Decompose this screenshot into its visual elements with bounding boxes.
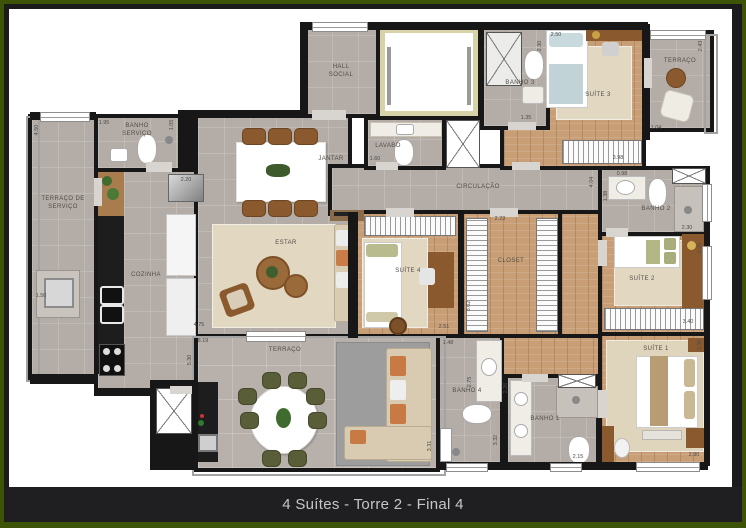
table-centerpiece: [266, 164, 290, 177]
dimension-label: 2.20: [181, 177, 192, 183]
coffee-table: [284, 274, 308, 298]
room-label-closet: CLOSET: [498, 258, 524, 266]
dimension-label: 1.60: [370, 156, 381, 162]
kitchen-cabinet: [166, 278, 196, 336]
room-label-jantar: JANTAR: [318, 156, 343, 164]
dimension-label: 2.25: [697, 243, 703, 254]
dimension-label: 2.23: [495, 216, 506, 222]
shaft-icon: [156, 388, 192, 434]
shower-box-icon: [558, 374, 596, 388]
window: [446, 463, 488, 472]
pillow: [664, 238, 676, 250]
dimension-label: 4.50: [34, 125, 40, 136]
fridge: [166, 214, 196, 276]
sink-icon: [514, 392, 528, 406]
window: [40, 112, 90, 122]
dining-chair: [242, 128, 266, 145]
blanket: [549, 64, 583, 104]
terrace-chair: [288, 450, 307, 467]
elevator: [380, 28, 478, 116]
dining-chair: [294, 128, 318, 145]
room-label-hall-social: HALL SOCIAL: [329, 64, 353, 80]
room-label-banho2: BANHO 2: [641, 206, 670, 214]
terrace-chair: [262, 372, 281, 389]
room-label-suite1: SUÍTE 1: [643, 346, 668, 354]
dimension-label: 2.30: [682, 225, 693, 231]
shower-head-icon: [572, 396, 580, 404]
kitchen-sink: [100, 286, 124, 305]
dimension-label: 5.30: [187, 355, 193, 366]
lamp-icon: [687, 241, 696, 250]
dimension-label: 1.95: [99, 120, 110, 126]
dimension-label: 4.75: [194, 322, 205, 328]
dimension-label: 3.32: [493, 435, 499, 446]
sofa-cushion: [390, 404, 406, 424]
sofa-cushion: [390, 356, 406, 376]
shaft-icon: [446, 120, 480, 168]
shower-head-icon: [452, 448, 460, 456]
desk-chair: [419, 268, 435, 285]
window: [636, 462, 700, 472]
plant-icon: [198, 420, 204, 426]
elevator-door-rail: [467, 47, 471, 105]
terrace-chair: [240, 412, 259, 429]
dining-chair: [268, 128, 292, 145]
dimension-label: 0.98: [617, 171, 628, 177]
closet-wardrobe: [466, 218, 488, 332]
dimension-label: 4.04: [589, 177, 595, 188]
dimension-label: 1.38: [603, 191, 609, 202]
room-label-banho-servico: BANHO SERVIÇO: [122, 123, 152, 139]
sink-icon: [514, 424, 528, 438]
room-label-terraco-servico: TERRAÇO DE SERVIÇO: [41, 196, 84, 212]
dimension-label: 8.19: [198, 338, 209, 344]
dimension-label: 3.98: [613, 155, 624, 161]
window: [702, 184, 712, 222]
window: [702, 246, 712, 300]
pouf: [389, 317, 407, 335]
shower-head-icon: [684, 206, 692, 214]
pillow: [684, 391, 695, 419]
desk-chair: [614, 438, 630, 458]
toilet-icon: [524, 50, 544, 80]
terrace-chair: [308, 412, 327, 429]
room-label-lavabo: LAVABO: [375, 143, 401, 151]
dimension-label: 2.75: [467, 377, 473, 388]
dimension-label: 2.43: [698, 41, 704, 52]
terrace-chair: [288, 372, 307, 389]
table-centerpiece: [276, 408, 291, 428]
plant-icon: [102, 176, 112, 186]
balcony-railing: [26, 116, 40, 382]
sofa-cushion: [390, 380, 406, 400]
sink-icon: [481, 358, 497, 376]
room-label-estar: ESTAR: [275, 240, 297, 248]
room-label-banho1: BANHO 1: [530, 416, 559, 424]
wardrobe-suite4: [364, 216, 456, 236]
dimension-label: 1.35: [521, 115, 532, 121]
room-label-terraco-inferior: TERRAÇO: [269, 347, 301, 355]
blanket: [646, 240, 660, 264]
pillow: [664, 252, 676, 264]
steel-sink-icon: [44, 278, 74, 308]
bed-bench: [642, 430, 682, 440]
nightstand: [686, 428, 706, 448]
dimension-label: 2.30: [537, 41, 543, 52]
closet-wardrobe: [536, 218, 558, 332]
hall-privativo-vertical: [562, 214, 600, 336]
shower-box-icon: [486, 32, 522, 86]
dimension-label: 2.90: [689, 452, 700, 458]
hall-privativo-inferior: [502, 338, 600, 376]
wardrobe-suite3: [562, 140, 642, 164]
pillow: [684, 359, 695, 387]
dimension-label: 3.02: [466, 301, 472, 312]
dimension-label: 2.50: [551, 32, 562, 38]
sink-icon: [616, 180, 635, 195]
dimension-label: 1.04: [651, 125, 662, 131]
stove: [99, 344, 125, 376]
balcony-railing: [704, 34, 718, 134]
dining-chair: [242, 200, 266, 217]
room-label-terraco-superior: TERRAÇO: [664, 58, 696, 66]
dining-chair: [294, 200, 318, 217]
elevator-door-rail: [387, 47, 391, 105]
toilet-icon: [648, 178, 667, 208]
room-terraco-servico: [32, 118, 94, 376]
dimension-label: 1.50: [36, 293, 47, 299]
shower-head-icon: [165, 136, 173, 144]
plant-icon: [266, 266, 278, 278]
room-label-banho4: BANHO 4: [452, 388, 481, 396]
room-label-banho3: BANHO 3: [505, 80, 534, 88]
dining-chair: [268, 200, 292, 217]
room-label-suite4: SUÍTE 4: [395, 268, 420, 276]
toilet-icon: [462, 404, 492, 424]
lamp-icon: [592, 31, 600, 39]
bed-runner: [650, 356, 668, 426]
terrace-chair: [306, 388, 325, 405]
terrace-chair: [238, 388, 257, 405]
sink-icon: [396, 124, 414, 135]
dimension-label: 2.15: [573, 454, 584, 460]
dimension-label: 2.26: [503, 383, 509, 394]
plant-icon: [107, 188, 119, 200]
room-label-cozinha: COZINHA: [131, 272, 161, 280]
room-label-suite3: SUÍTE 3: [585, 92, 610, 100]
dimension-label: 3.35: [697, 340, 703, 351]
room-label-suite2: SUÍTE 2: [629, 276, 654, 284]
sink-icon: [110, 148, 128, 162]
vent-icon: [672, 168, 706, 184]
window: [312, 22, 368, 32]
dimension-label: 1.05: [169, 120, 175, 131]
kitchen-sink: [100, 305, 124, 324]
caption-text: 4 Suítes - Torre 2 - Final 4: [282, 496, 464, 513]
floorplan-image: HALL SOCIAL BANHO SERVIÇO TERRAÇO DE SER…: [0, 0, 746, 528]
side-table: [666, 68, 686, 88]
window: [650, 30, 706, 40]
desk: [602, 426, 614, 462]
room-label-circulacao: CIRCULAÇÃO: [456, 184, 499, 192]
dimension-label: 2.51: [439, 324, 450, 330]
steel-sink-icon: [198, 434, 218, 452]
pillow: [366, 244, 398, 257]
terrace-chair: [262, 450, 281, 467]
image-caption: 4 Suítes - Torre 2 - Final 4: [4, 487, 742, 522]
sink-icon: [522, 86, 544, 104]
desk-chair: [602, 42, 619, 56]
dimension-label: 3.31: [427, 441, 433, 452]
sofa-cushion: [350, 430, 366, 444]
door-leaf: [440, 428, 452, 462]
dimension-label: 3.40: [683, 319, 694, 325]
window: [550, 463, 582, 472]
dimension-label: 1.48: [443, 340, 454, 346]
grill-knob-icon: [200, 414, 204, 418]
